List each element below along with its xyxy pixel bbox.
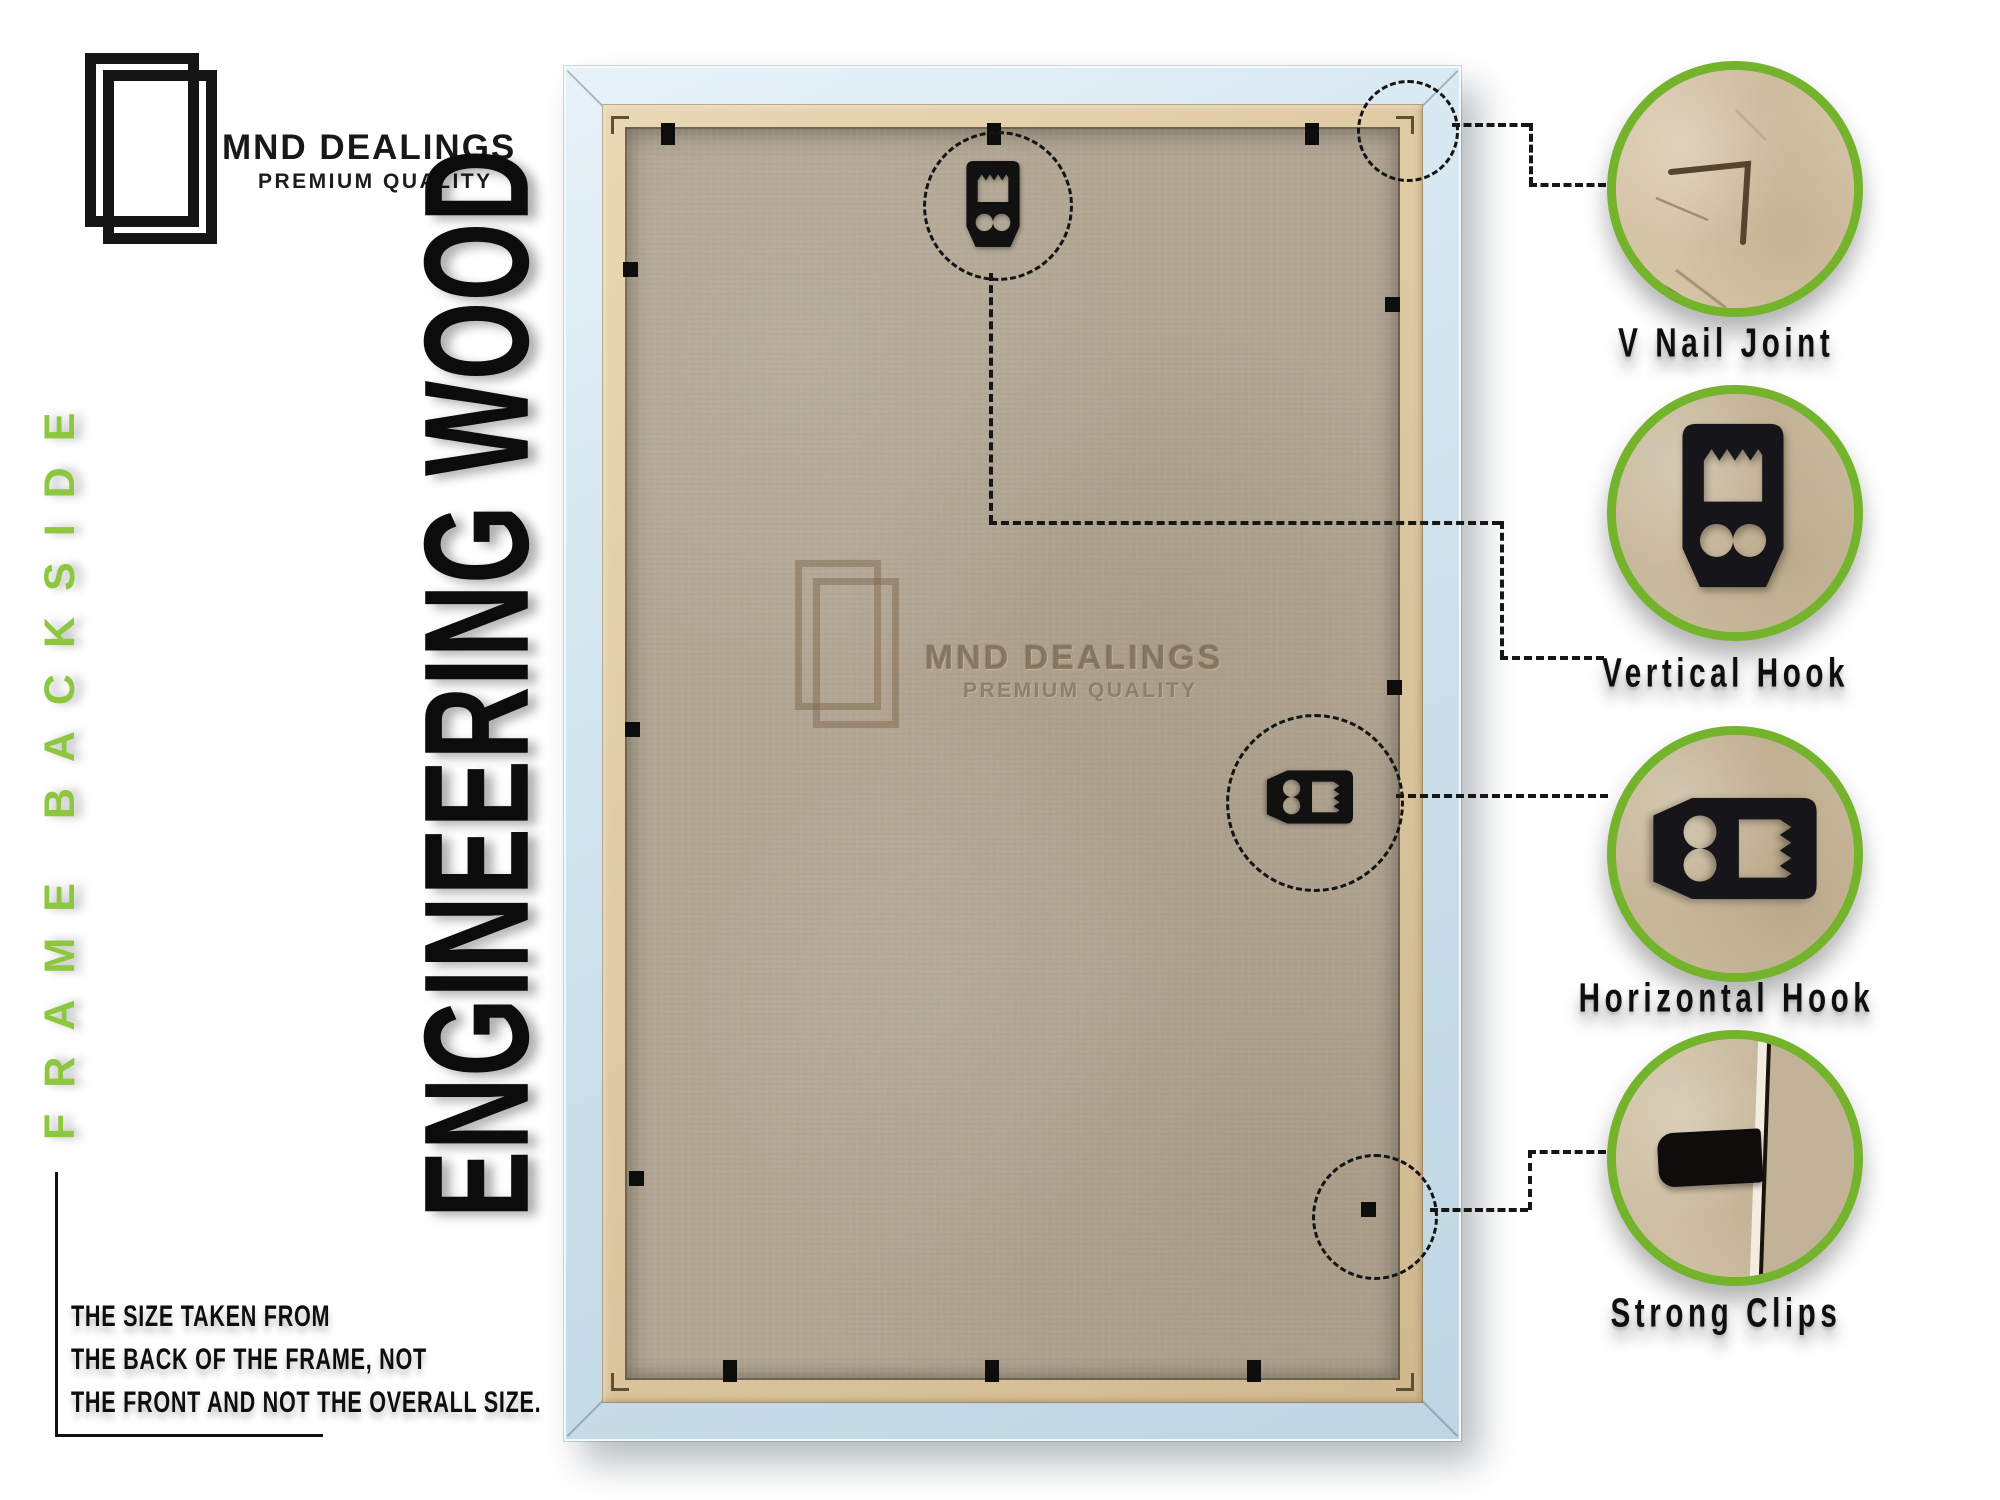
clip-mark — [623, 262, 638, 277]
product-infographic: MND DEALINGS PREMIUM QUALITY FRAME BACKS… — [0, 0, 2000, 1500]
connector-line — [1452, 123, 1529, 127]
clip-mark — [661, 123, 675, 145]
dashed-circle-annotation — [923, 131, 1073, 281]
callout-label: Strong Clips — [1516, 1292, 1936, 1336]
callout-vertical-hook — [1607, 385, 1863, 641]
v-nail-groove-icon — [1616, 70, 1854, 308]
note-text: THE SIZE TAKEN FROM — [71, 1300, 330, 1334]
note-text: THE FRONT AND NOT THE OVERALL SIZE. — [71, 1386, 541, 1420]
connector-line — [989, 521, 1500, 525]
side-label-frame-backside: FRAME BACKSIDE — [14, 384, 106, 1140]
horizontal-hook-icon — [1650, 790, 1821, 908]
callout-label: V Nail Joint — [1516, 322, 1936, 366]
dashed-circle-annotation — [1357, 80, 1459, 182]
connector-line — [1430, 1208, 1528, 1212]
connector-line — [1529, 183, 1606, 187]
clip-mark — [1247, 1360, 1261, 1382]
connector-line — [1529, 123, 1533, 185]
clip-mark — [985, 1360, 999, 1382]
callout-horizontal-hook — [1607, 726, 1863, 982]
overlapping-frames-icon — [813, 578, 899, 728]
clip-mark — [1385, 297, 1400, 312]
frame-backside-photo: MND DEALINGS PREMIUM QUALITY — [564, 66, 1461, 1441]
clip-mark — [1305, 123, 1319, 145]
connector-line — [1528, 1150, 1532, 1210]
overlapping-frames-icon — [103, 70, 217, 244]
note-text: THE BACK OF THE FRAME, NOT — [71, 1343, 427, 1377]
connector-line — [1500, 521, 1504, 658]
clip-mark — [629, 1171, 644, 1186]
clip-mark — [625, 722, 640, 737]
vertical-hook-icon — [1674, 420, 1792, 591]
clip-mark — [723, 1360, 737, 1382]
dashed-circle-annotation — [1226, 714, 1404, 892]
strong-clip-icon — [1657, 1128, 1764, 1187]
watermark-tagline: PREMIUM QUALITY — [963, 679, 1198, 703]
main-title-engineering-wood: ENGINEERING WOOD — [402, 210, 552, 1218]
connector-line — [989, 273, 993, 523]
watermark-title: MND DEALINGS — [925, 639, 1224, 678]
callout-label: Vertical Hook — [1516, 652, 1936, 696]
clip-mark — [1387, 680, 1402, 695]
connector-line — [1528, 1150, 1606, 1154]
connector-line — [1396, 794, 1608, 798]
note-rule-vertical — [55, 1172, 58, 1434]
board-edge — [1757, 1030, 1863, 1286]
callout-label: Horizontal Hook — [1516, 977, 1936, 1021]
note-rule-horizontal — [55, 1434, 323, 1437]
callout-strong-clips — [1607, 1030, 1863, 1286]
callout-v-nail-joint — [1607, 61, 1863, 317]
dashed-circle-annotation — [1312, 1154, 1438, 1280]
